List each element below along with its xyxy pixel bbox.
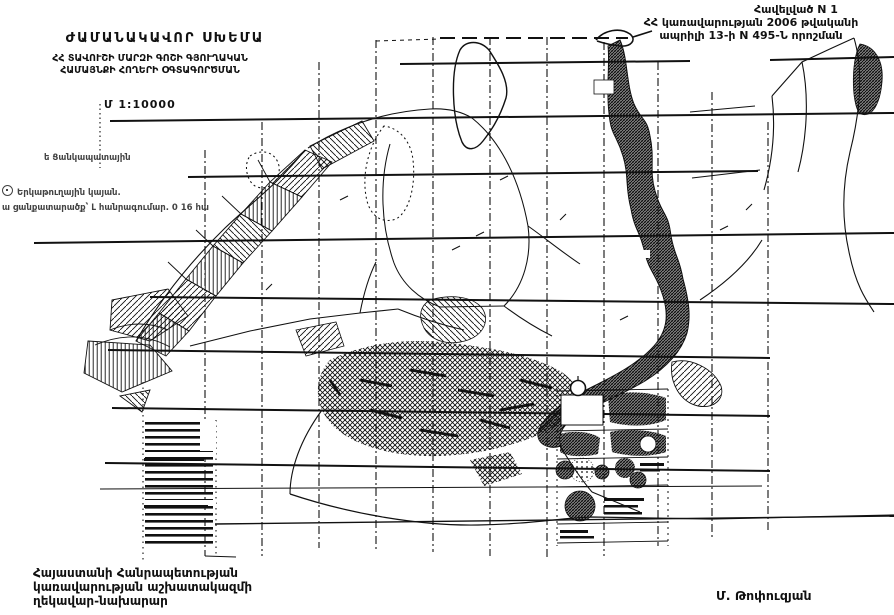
office-line-2: կառավարության աշխատակազմի bbox=[33, 580, 252, 594]
scanned-map-document: Հավելված N 1 ՀՀ կառավարության 2006 թվակա… bbox=[0, 0, 894, 615]
legend-item-3: ա ցանքատարածք՝ Լ հանրագումար. 0 16 հա bbox=[2, 203, 209, 213]
legend-item-2-label: Երկաթուղային կայան. bbox=[17, 188, 121, 198]
map-subtitle-line-1: ՀՀ ՏԱՎՈՒՇԻ ՄԱՐԶԻ ԳՈՇԻ ԳՅՈՒՂԱԿԱՆ bbox=[28, 53, 272, 64]
bottom-boundary bbox=[205, 494, 894, 557]
map-title: ԺԱՄԱՆԱԿԱՎՈՐ ՍԽԵՄԱ bbox=[58, 31, 272, 46]
annotation-line-2: ՀՀ կառավարության 2006 թվականի bbox=[608, 16, 894, 29]
northeast-boundary bbox=[690, 38, 882, 312]
legend-item-2: Երկաթուղային կայան. bbox=[2, 185, 121, 198]
stripe-block bbox=[144, 421, 216, 545]
annotation-line-1: Հավելված N 1 bbox=[700, 3, 892, 16]
signing-office: Հայաստանի Հանրապետության կառավարության ա… bbox=[33, 566, 252, 608]
map-marker-circle bbox=[571, 376, 586, 396]
map-scale: Մ 1:10000 bbox=[104, 98, 176, 111]
station-circle-icon bbox=[2, 185, 13, 196]
inset-table bbox=[557, 389, 668, 546]
office-line-3: ղեկավար-նախարար bbox=[33, 594, 252, 608]
annotation-line-3: ապրիլի 13-ի N 495-Ն որոշման bbox=[608, 29, 894, 42]
map-subtitle-line-2: ՀԱՄԱՅՆՔԻ ՀՈՂԵՐԻ ՕԳՏԱԳՈՐԾՄԱՆ bbox=[28, 65, 272, 76]
signature-name: Մ. Թոփուզյան bbox=[716, 588, 812, 603]
land-use-map bbox=[0, 0, 894, 615]
legend-item-1: ե Ցանկապատային bbox=[44, 153, 131, 163]
office-line-1: Հայաստանի Հանրապետության bbox=[33, 566, 252, 580]
